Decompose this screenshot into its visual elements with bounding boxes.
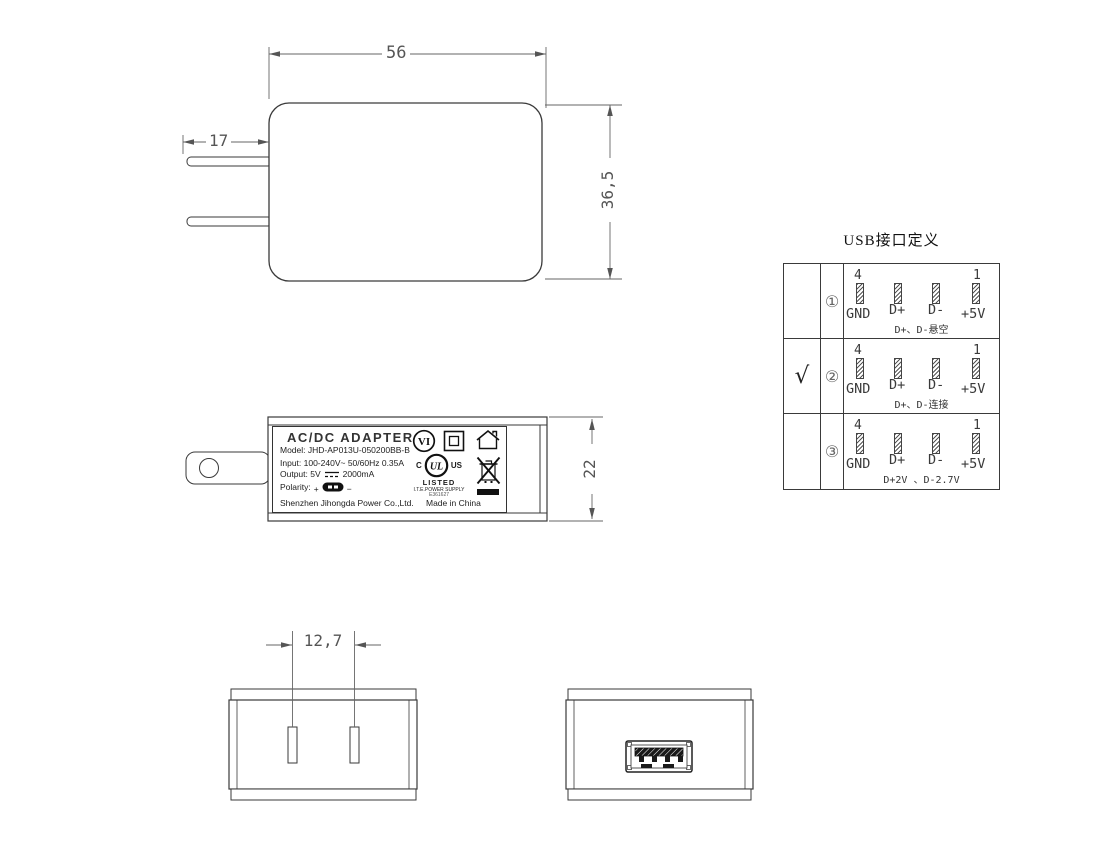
pin-label-dplus: D+ [889, 452, 905, 468]
dim-front-height: 36,5 [600, 158, 620, 222]
pin-contact-icon [972, 283, 980, 304]
usb-tongue [635, 748, 683, 756]
pin-label-5v: +5V [961, 306, 985, 322]
adapter-technical-drawing: 56 17 36,5 22 12,7 AC/DC ADAPTER Model: … [0, 0, 1100, 861]
pin-number-1: 1 [973, 418, 981, 433]
usb-port-icon [626, 741, 692, 772]
pin-label-5v: +5V [961, 381, 985, 397]
usb-polarity-icon [322, 482, 344, 492]
pin-number-1: 1 [973, 268, 981, 283]
pin-contact-icon [932, 433, 940, 454]
pin-contact-icon [856, 433, 864, 454]
efficiency-mark-icon: VI [412, 429, 436, 453]
pin-contact-icon [932, 283, 940, 304]
pinout-row-1: 4 1 GND D+ D- +5V D+、D-悬空 [844, 264, 999, 339]
pin-contact-icon [972, 433, 980, 454]
product-label: AC/DC ADAPTER Model: JHD-AP013U-050200BB… [272, 426, 507, 513]
label-title: AC/DC ADAPTER [287, 431, 414, 444]
pin-label-gnd: GND [846, 381, 870, 397]
label-output-line: Output: 5V 2000mA [280, 470, 374, 479]
indoor-use-icon [474, 428, 502, 452]
pinout-row-2: 4 1 GND D+ D- +5V D+、D-连接 [844, 339, 999, 414]
pin-label-5v: +5V [961, 456, 985, 472]
pin-number-4: 4 [854, 343, 862, 358]
check-cell-row3 [784, 414, 821, 489]
usb-face-bottom-cap [568, 789, 751, 800]
usb-face-top-cap [568, 689, 751, 700]
dc-symbol-icon [324, 470, 340, 479]
plug-face-bottom-cap [231, 789, 416, 800]
ul-c: C [416, 462, 422, 470]
pin-contact-icon [932, 358, 940, 379]
ul-file-number: E361627 [401, 493, 477, 498]
front-view [187, 103, 542, 281]
pin-number-4: 4 [854, 268, 862, 283]
plug-face-view [229, 689, 417, 800]
pin-label-gnd: GND [846, 456, 870, 472]
check-cell-row1 [784, 264, 821, 339]
label-model-line: Model: JHD-AP013U-050200BB-B [280, 446, 410, 455]
label-input-line: Input: 100-240V~ 50/60Hz 0.35A [280, 459, 404, 468]
pin-slot-right [350, 727, 359, 763]
dim-side-height: 22 [582, 444, 602, 494]
row-number-1: ① [821, 264, 844, 339]
pin-label-dminus: D- [928, 377, 944, 393]
pin-label-dplus: D+ [889, 302, 905, 318]
row-number-3: ③ [821, 414, 844, 489]
row-number-2: ② [821, 339, 844, 414]
ul-listed-text: LISTED [401, 479, 477, 487]
label-polarity-line: Polarity: + − [280, 482, 352, 492]
dim-prong-length: 17 [206, 133, 231, 149]
front-body [269, 103, 542, 281]
weee-bar [477, 489, 499, 495]
polarity-plus: + [314, 485, 319, 494]
output-prefix: Output: 5V [280, 470, 321, 479]
double-insulation-icon [443, 430, 465, 452]
pin-note-2: D+、D-连接 [844, 396, 999, 411]
pin-number-1: 1 [973, 343, 981, 358]
pin-contact-icon [856, 358, 864, 379]
front-prong-top [187, 157, 272, 166]
ul-monogram: UL [424, 453, 449, 478]
pin-label-dminus: D- [928, 452, 944, 468]
dim-pin-spacing: 12,7 [299, 633, 347, 649]
ul-letters: UL [430, 462, 443, 473]
output-suffix: 2000mA [343, 470, 375, 479]
pin-note-1: D+、D-悬空 [844, 321, 999, 336]
pin-contact-icon [894, 358, 902, 379]
side-prong [186, 452, 270, 484]
usb-table-title: USB接口定义 [783, 229, 1000, 250]
weee-icon [475, 456, 501, 500]
efficiency-level: VI [418, 436, 430, 448]
pinout-row-3: 4 1 GND D+ D- +5V D+2V 、D-2.7V [844, 414, 999, 489]
label-manufacturer: Shenzhen Jihongda Power Co.,Ltd. [280, 499, 414, 508]
pin-contact-icon [894, 433, 902, 454]
ul-us: US [451, 462, 462, 470]
ul-listed-icon: C UL US LISTED I.T.E.POWER SUPPLY E36162… [401, 453, 477, 498]
pin-label-dminus: D- [928, 302, 944, 318]
plug-face-body [229, 700, 417, 789]
front-prong-bottom [187, 217, 272, 226]
pin-contact-icon [856, 283, 864, 304]
polarity-label: Polarity: [280, 483, 311, 492]
polarity-minus: − [347, 485, 352, 494]
check-cell-row2: √ [784, 339, 821, 414]
pin-label-dplus: D+ [889, 377, 905, 393]
side-prong-hole [200, 459, 219, 478]
pin-number-4: 4 [854, 418, 862, 433]
pin-slot-left [288, 727, 297, 763]
pin-contact-icon [894, 283, 902, 304]
usb-pinout-table: ① 4 1 GND D+ D- +5V D+、D-悬空 √ ② 4 1 GND … [783, 263, 1000, 490]
pin-contact-icon [972, 358, 980, 379]
dim-front-width: 56 [382, 45, 410, 62]
pin-label-gnd: GND [846, 306, 870, 322]
pin-note-3: D+2V 、D-2.7V [844, 471, 999, 486]
label-made-in: Made in China [426, 499, 481, 508]
plug-face-top-cap [231, 689, 416, 700]
